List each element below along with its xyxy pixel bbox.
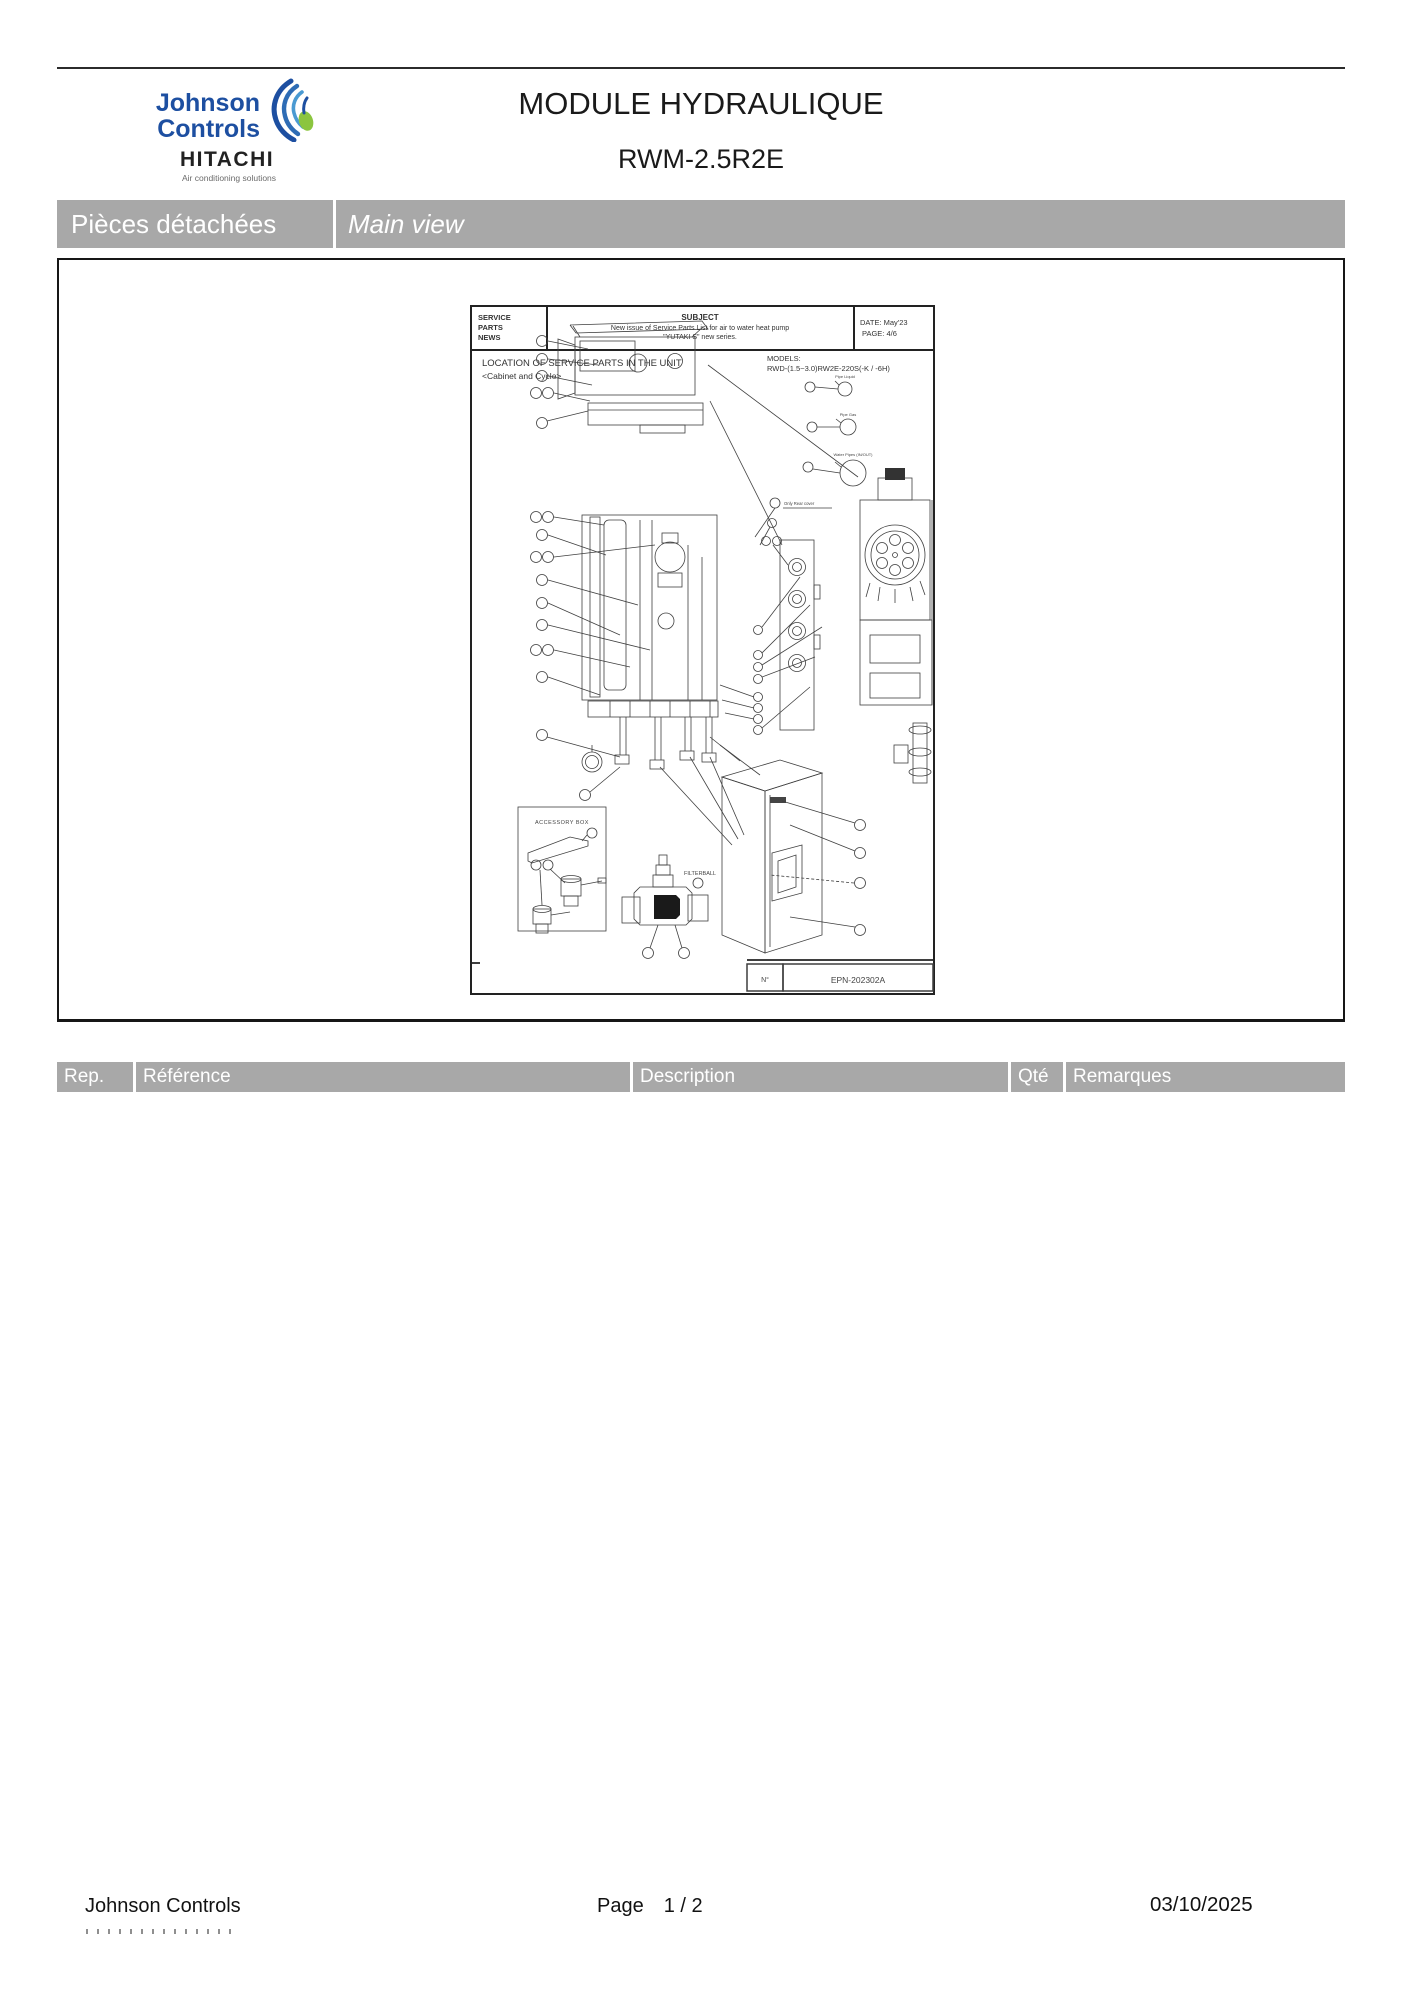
table-header-description: Description	[633, 1062, 1008, 1092]
subject-label: SUBJECT	[681, 313, 718, 322]
pipe-liquid-label: Pipe Liquid	[835, 374, 855, 379]
footer-date: 03/10/2025	[1150, 1893, 1253, 1917]
footer-page-indicator: Page1 / 2	[597, 1895, 703, 1918]
section-label-spare-parts: Pièces détachées	[57, 200, 333, 248]
models-value: RWD-(1.5~3.0)RW2E-220S(-K / -6H)	[767, 364, 890, 373]
accessory-box-label: ACCESSORY BOX	[535, 820, 589, 826]
diagram-linework	[472, 321, 933, 991]
doc-no-label: N°	[761, 976, 769, 984]
masthead-parts: PARTS	[478, 323, 503, 332]
document-page: Johnson Controls HITACHI Air conditionin…	[0, 0, 1410, 1993]
footer-clipped-text-line	[86, 1929, 238, 1934]
table-header-reference: Référence	[136, 1062, 630, 1092]
pipe-gas-label: Pipe Gas	[840, 412, 856, 417]
model-subtitle: RWM-2.5R2E	[57, 144, 1345, 175]
doc-no-value: EPN-202302A	[831, 975, 886, 985]
footer-page-label: Page	[597, 1895, 644, 1917]
table-header-qty: Qté	[1011, 1062, 1063, 1092]
doc-date: DATE: May'23	[860, 318, 908, 327]
masthead-news: NEWS	[478, 333, 501, 342]
page-title: MODULE HYDRAULIQUE	[57, 86, 1345, 122]
doc-page: PAGE: 4/6	[862, 329, 897, 338]
footer-page-value: 1 / 2	[664, 1895, 703, 1917]
table-header-remarks: Remarques	[1066, 1062, 1345, 1092]
exploded-parts-drawing: SERVICE PARTS NEWS SUBJECT New issue of …	[470, 305, 935, 995]
location-title: LOCATION OF SERVICE PARTS IN THE UNIT	[482, 358, 682, 369]
subject-line2: "YUTAKI S" new series.	[663, 334, 737, 341]
water-pipes-label: Water Pipes (IN/OUT)	[834, 452, 874, 457]
only-note-label: Only Rear cover	[784, 501, 815, 506]
footer-company: Johnson Controls	[85, 1895, 241, 1918]
section-label-view: Main view	[336, 200, 1345, 248]
header-rule	[57, 67, 1345, 69]
masthead-service: SERVICE	[478, 313, 511, 322]
filterball-label: FILTERBALL	[684, 871, 716, 877]
table-header-rep: Rep.	[57, 1062, 133, 1092]
models-label: MODELS:	[767, 354, 801, 363]
